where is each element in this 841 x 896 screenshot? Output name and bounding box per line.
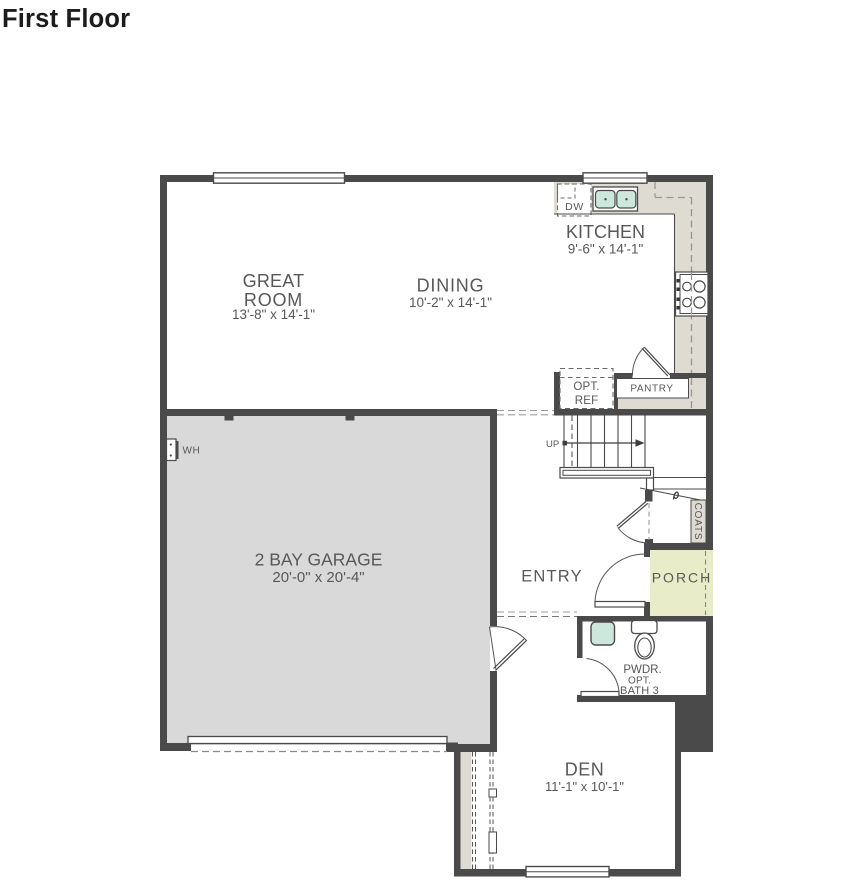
- svg-text:BATH 3: BATH 3: [620, 685, 659, 697]
- svg-text:13'-8" x 14'-1": 13'-8" x 14'-1": [232, 307, 315, 322]
- svg-text:10'-2" x 14'-1": 10'-2" x 14'-1": [409, 295, 492, 310]
- svg-text:9'-6" x 14'-1": 9'-6" x 14'-1": [568, 242, 644, 257]
- svg-text:DW: DW: [565, 201, 584, 213]
- svg-text:KITCHEN: KITCHEN: [566, 222, 645, 242]
- svg-text:DEN: DEN: [565, 760, 605, 780]
- svg-text:OPT.: OPT.: [573, 381, 599, 393]
- svg-text:WH: WH: [183, 446, 201, 457]
- svg-text:20'-0" x 20'-4": 20'-0" x 20'-4": [272, 569, 364, 586]
- svg-text:2 BAY GARAGE: 2 BAY GARAGE: [255, 550, 383, 570]
- svg-text:First Floor: First Floor: [2, 5, 130, 33]
- svg-text:GREAT: GREAT: [243, 271, 305, 291]
- svg-text:UP: UP: [546, 439, 559, 450]
- svg-text:DINING: DINING: [417, 276, 485, 296]
- svg-text:PANTRY: PANTRY: [630, 384, 673, 395]
- svg-text:COATS: COATS: [692, 503, 703, 541]
- svg-text:ENTRY: ENTRY: [521, 568, 583, 586]
- svg-text:PORCH: PORCH: [652, 570, 713, 586]
- svg-text:11'-1" x 10'-1": 11'-1" x 10'-1": [545, 779, 624, 794]
- svg-text:PWDR.: PWDR.: [623, 664, 661, 676]
- svg-text:REF: REF: [575, 395, 599, 407]
